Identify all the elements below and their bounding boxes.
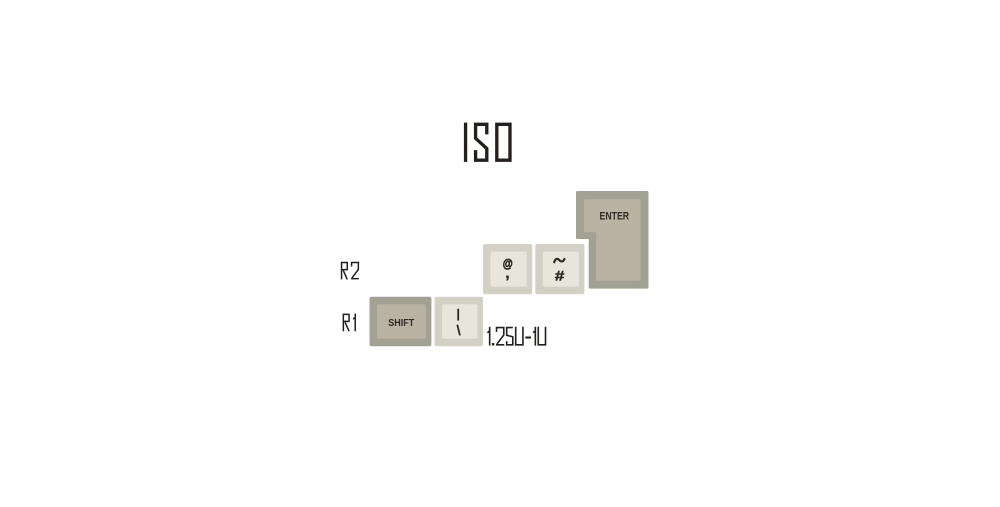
svg-text:ENTER: ENTER (600, 210, 630, 222)
svg-text:,: , (505, 265, 509, 282)
svg-text:#: # (555, 268, 565, 284)
svg-text:SHIFT: SHIFT (388, 318, 415, 329)
